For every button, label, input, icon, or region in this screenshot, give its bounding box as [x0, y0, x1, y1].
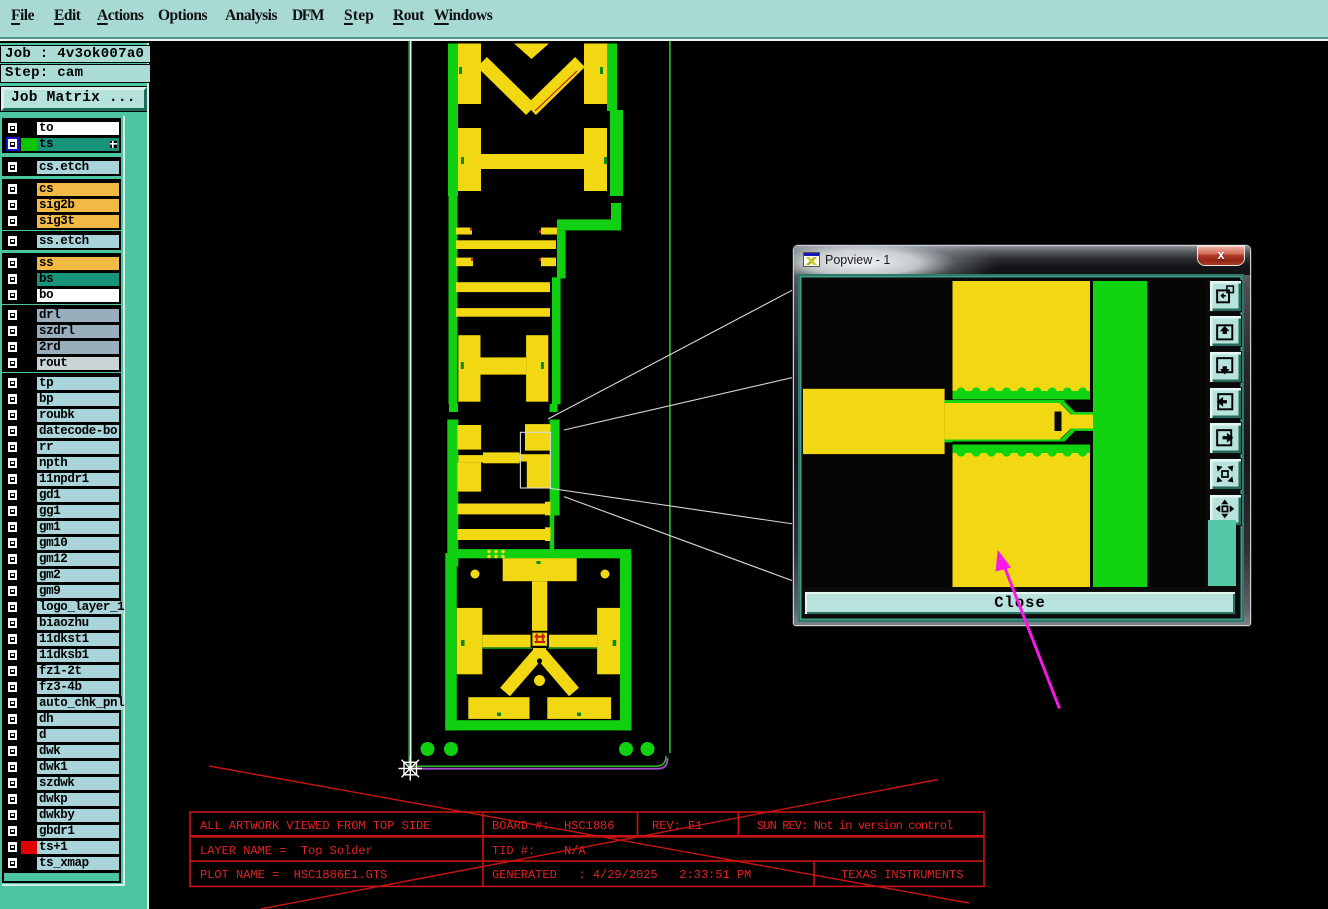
- svg-text:PLOT NAME = HSC1886E1.GTS: PLOT NAME = HSC1886E1.GTS: [200, 868, 387, 882]
- svg-text:ALL ARTWORK VIEWED FROM TOP SI: ALL ARTWORK VIEWED FROM TOP SIDE: [200, 819, 430, 833]
- svg-text:GENERATED : 4/29/2025 2:33: GENERATED : 4/29/2025 2:33:51 PM: [492, 868, 751, 882]
- svg-text:BOARD #: HSC1886: BOARD #: HSC1886: [492, 819, 614, 833]
- svg-text:TEXAS INSTRUMENTS: TEXAS INSTRUMENTS: [841, 868, 963, 882]
- svg-text:LAYER NAME = Top Solder: LAYER NAME = Top Solder: [200, 844, 373, 858]
- svg-text:SUN REV: Not in version contro: SUN REV: Not in version control: [757, 819, 953, 833]
